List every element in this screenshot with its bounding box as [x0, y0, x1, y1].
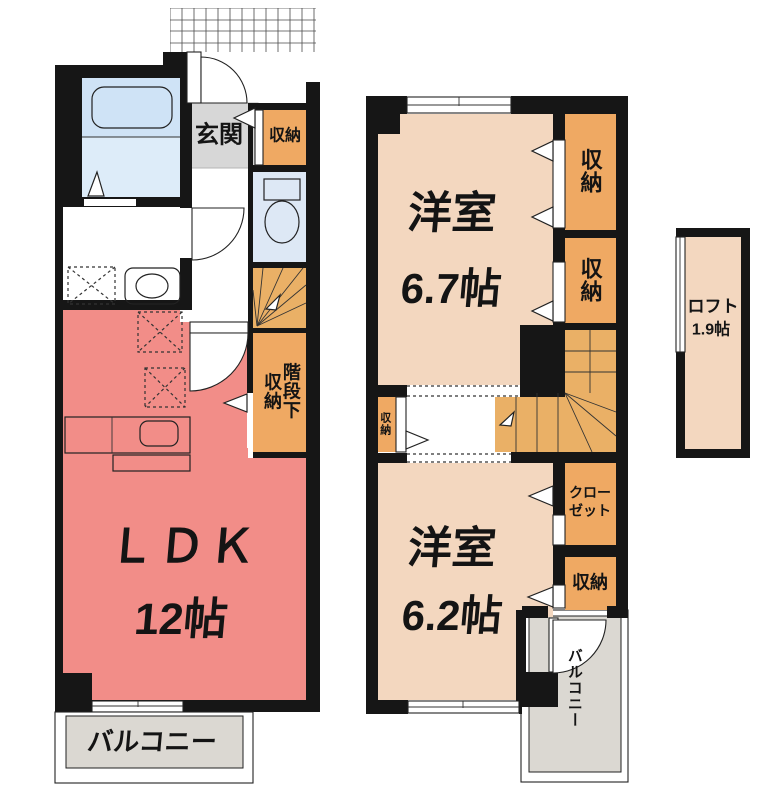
storage-a-door	[553, 140, 565, 228]
hall-storage-door	[396, 397, 406, 452]
window	[92, 701, 183, 712]
label-understair-storage: 階段下 収納	[262, 363, 300, 420]
room-loft	[685, 237, 741, 449]
window	[407, 97, 511, 113]
loft-unit	[676, 228, 750, 458]
label-ldk: ＬＤＫ	[107, 522, 261, 570]
stairs-floor2-upper	[565, 330, 616, 393]
label-storage-d: 収納	[572, 574, 608, 593]
label-hall-storage: 収納	[378, 412, 390, 436]
label-ldk-size: 12帖	[133, 597, 230, 643]
understair-door-gap	[247, 393, 253, 448]
storage-d-door	[553, 585, 565, 608]
label-western-6-2-size: 6.2帖	[400, 594, 504, 638]
storage-b-door	[553, 262, 565, 322]
label-western-6-7-size: 6.7帖	[399, 267, 503, 311]
label-understair-line1: 階段下	[281, 363, 300, 420]
label-closet-line1: クロー	[569, 485, 611, 503]
label-closet: クロー ゼット	[569, 485, 611, 520]
label-balcony-floor1: バルコニー	[86, 728, 218, 755]
washroom-door-gap	[180, 208, 192, 258]
room-ldk	[248, 458, 306, 700]
label-loft-size: 1.9帖	[692, 323, 730, 340]
label-storage-a: 収納	[578, 148, 601, 194]
label-understair-line2: 収納	[262, 363, 281, 420]
sliding-opening	[407, 453, 511, 463]
label-balcony-floor2: バルコニー	[566, 648, 582, 728]
window	[408, 701, 519, 713]
stairs-floor2-lower	[495, 393, 616, 452]
closet-door	[553, 515, 565, 545]
label-storage-b: 収納	[578, 257, 601, 303]
bath-threshold	[84, 199, 136, 206]
label-loft: ロフト	[688, 298, 739, 316]
label-closet-line2: ゼット	[569, 502, 611, 520]
label-western-6-2: 洋室	[406, 526, 498, 572]
entrance-storage-door	[255, 110, 263, 165]
floorplan-graphic	[0, 0, 782, 800]
label-entrance: 玄関	[195, 122, 243, 147]
label-western-6-7: 洋室	[406, 191, 498, 237]
loft-ladder	[676, 237, 685, 352]
sliding-opening	[407, 385, 520, 397]
label-entrance-storage: 収納	[269, 129, 301, 146]
floor-plan-canvas: 玄関 収納 階段下 収納 ＬＤＫ 12帖 バルコニー 洋室 6.7帖 収納 収納…	[0, 0, 782, 800]
